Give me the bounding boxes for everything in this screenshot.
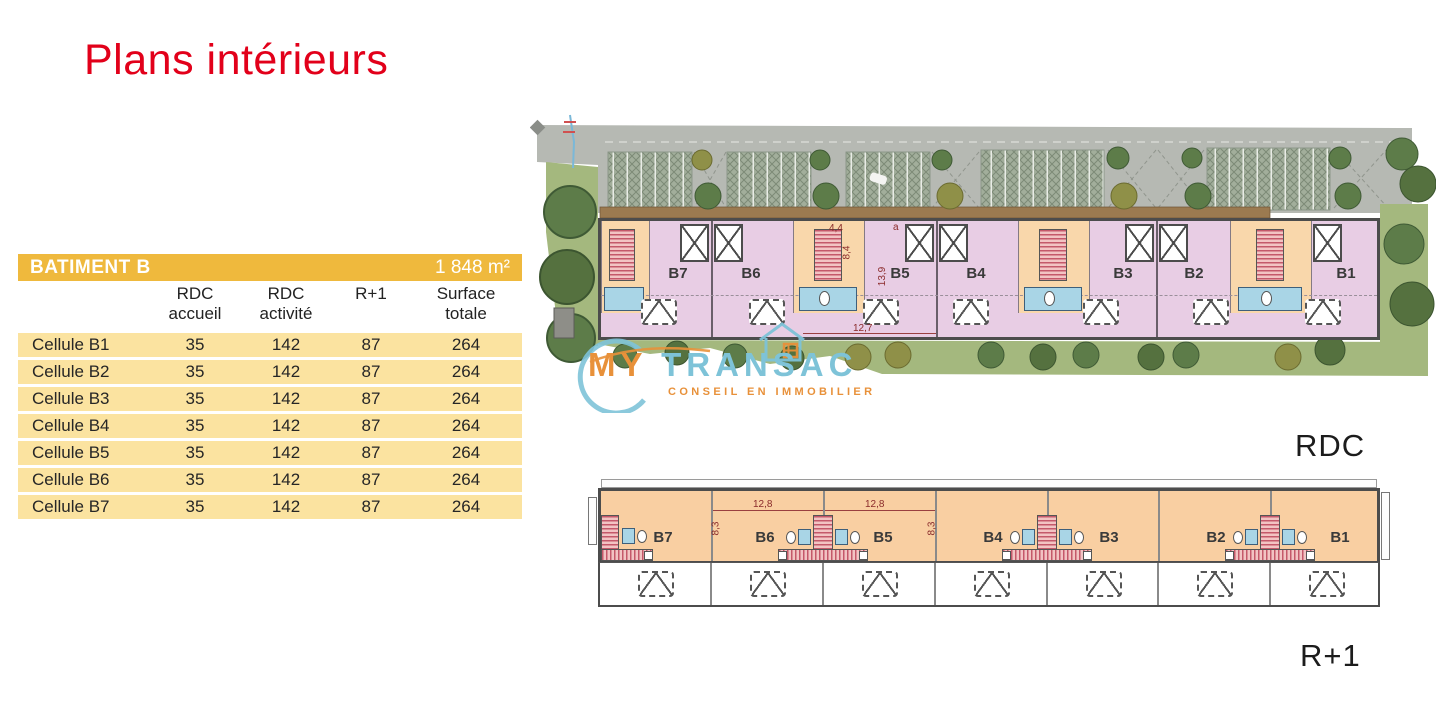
r1-plan-label: R+1: [1300, 638, 1361, 674]
r1-right-band: [1381, 492, 1390, 560]
table-row: Cellule B1 35 142 87 264: [18, 333, 522, 357]
dim-line: [825, 510, 935, 511]
fixture-oval: [819, 291, 830, 306]
smoke-vent: [1083, 299, 1119, 325]
partition-wall: [1158, 491, 1160, 561]
table-row: Cellule B5 35 142 87 264: [18, 441, 522, 465]
col-surface-totale: Surface totale: [410, 284, 522, 324]
dim-d-right: 8,3: [926, 522, 937, 536]
brand-tagline: CONSEIL EN IMMOBILIER: [668, 386, 875, 398]
skylight-box: [1159, 224, 1188, 262]
rdc-cell-b5: B5: [886, 265, 914, 282]
staircase: [814, 229, 842, 281]
r1-lower-strip: [598, 562, 1380, 607]
building-table: BATIMENT B 1 848 m² RDC accueil RDC acti…: [18, 254, 522, 519]
staircase: [1002, 515, 1092, 561]
skylight-box: [714, 224, 743, 262]
r1-cell-b3: B3: [1095, 529, 1123, 546]
smoke-vent: [863, 299, 899, 325]
skylight-box: [1125, 224, 1154, 262]
smoke-vent: [974, 571, 1010, 597]
partition-wall: [934, 563, 936, 605]
dim-w-b6: 12,8: [753, 499, 772, 510]
dim-cell-depth: 13,9: [877, 267, 888, 286]
r1-canopy-band: [601, 479, 1377, 488]
page-title: Plans intérieurs: [84, 36, 388, 85]
watermark-logo: MY TRANSAC CONSEIL EN IMMOBILIER: [560, 318, 860, 413]
r1-left-band: [588, 497, 597, 545]
smoke-vent: [1197, 571, 1233, 597]
building-area: 1 848 m²: [435, 257, 510, 279]
smoke-vent: [1305, 299, 1341, 325]
skylight-box: [680, 224, 709, 262]
rdc-plan-label: RDC: [1295, 428, 1365, 464]
fixture-oval: [1261, 291, 1272, 306]
staircase: [778, 515, 868, 561]
staircase: [1225, 515, 1315, 561]
rdc-cell-b1: B1: [1332, 265, 1360, 282]
staircase: [609, 229, 635, 281]
skylight-box: [905, 224, 934, 262]
dim-corner-a: a: [893, 222, 899, 233]
r1-cell-b1: B1: [1326, 529, 1354, 546]
partition-wall: [822, 563, 824, 605]
rdc-cell-b7: B7: [664, 265, 692, 282]
col-rdc-accueil: RDC accueil: [150, 284, 240, 324]
smoke-vent: [1193, 299, 1229, 325]
partition-wall: [936, 221, 938, 337]
smoke-vent: [638, 571, 674, 597]
table-row: Cellule B2 35 142 87 264: [18, 360, 522, 384]
fixture-oval: [1044, 291, 1055, 306]
smoke-vent: [750, 571, 786, 597]
table-row: Cellule B4 35 142 87 264: [18, 414, 522, 438]
col-r1: R+1: [332, 284, 410, 304]
skylight-box: [1313, 224, 1342, 262]
partition-wall: [1157, 563, 1159, 605]
table-row: Cellule B6 35 142 87 264: [18, 468, 522, 492]
brand-my: MY: [588, 346, 647, 383]
slide: Plans intérieurs BATIMENT B 1 848 m² RDC…: [0, 0, 1440, 713]
rdc-cell-b6: B6: [737, 265, 765, 282]
dim-d-left: 8,3: [710, 522, 721, 536]
r1-cell-b6: B6: [751, 529, 779, 546]
dim-w-b5: 12,8: [865, 499, 884, 510]
dim-hall-depth: 8,4: [841, 246, 852, 260]
table-header-bar: BATIMENT B 1 848 m²: [18, 254, 522, 281]
partition-wall: [1046, 563, 1048, 605]
r1-building: B7 B6 B5 B4 B3 B2 B1 12,8 12,8 8,3 8,3: [598, 488, 1380, 562]
col-rdc-activite: RDC activité: [240, 284, 332, 324]
partition-wall: [1269, 563, 1271, 605]
brand-text: MY TRANSAC: [588, 346, 857, 384]
staircase: [1256, 229, 1284, 281]
smoke-vent: [862, 571, 898, 597]
rdc-cell-b4: B4: [962, 265, 990, 282]
brand-transac: TRANSAC: [661, 346, 857, 383]
table-column-headers: RDC accueil RDC activité R+1 Surface tot…: [18, 281, 522, 330]
r1-cell-b5: B5: [869, 529, 897, 546]
table-row: Cellule B7 35 142 87 264: [18, 495, 522, 519]
smoke-vent: [953, 299, 989, 325]
dim-line: [713, 510, 823, 511]
dim-hall-width: 4,4: [829, 223, 843, 234]
smoke-vent: [1086, 571, 1122, 597]
table-row: Cellule B3 35 142 87 264: [18, 387, 522, 411]
rdc-cell-b2: B2: [1180, 265, 1208, 282]
partition-wall: [1156, 221, 1158, 337]
building-name: BATIMENT B: [30, 257, 151, 279]
r1-cell-b7: B7: [649, 529, 677, 546]
smoke-vent: [1309, 571, 1345, 597]
staircase: [1039, 229, 1067, 281]
rdc-cell-b3: B3: [1109, 265, 1137, 282]
sanitary-block: [604, 287, 644, 311]
skylight-box: [939, 224, 968, 262]
staircase: [601, 515, 653, 561]
partition-wall: [710, 563, 712, 605]
